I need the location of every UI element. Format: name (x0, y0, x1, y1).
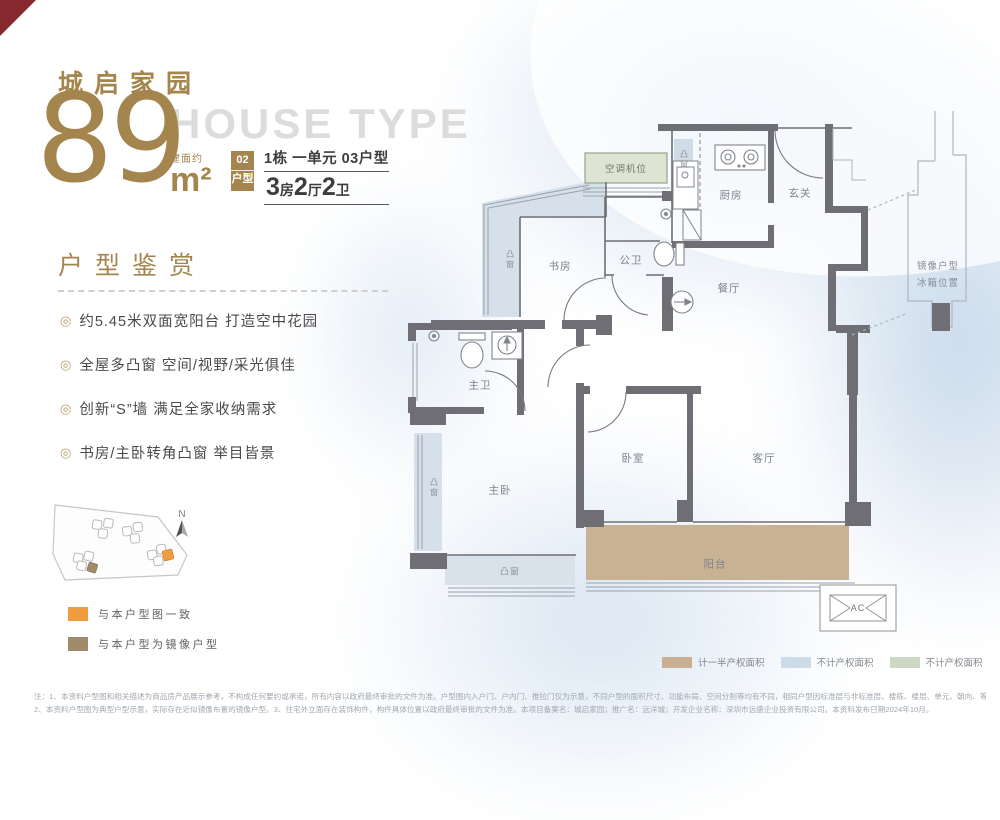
room-label-bedroom: 卧室 (622, 451, 645, 466)
unit-location: 1栋 一单元 03户型 (264, 147, 389, 172)
legend-item: 不计产权面积 (781, 655, 874, 669)
room-label-kitchen: 厨房 (720, 188, 743, 203)
north-arrow-icon: N (176, 509, 188, 537)
feature-text: 全屋多凸窗 空间/视野/采光俱佳 (79, 354, 296, 375)
site-plan: N (50, 492, 230, 607)
fridge-position-icon (671, 291, 693, 313)
list-item: ◎ 约5.45米双面宽阳台 打造空中花园 (60, 310, 318, 331)
room-label-dining: 餐厅 (718, 281, 741, 296)
room-label-ac-outdoor: AC (851, 603, 866, 613)
site-legend: 与本户型图一致 与本户型为镜像户型 (68, 606, 220, 666)
legend-item: 与本户型图一致 (68, 606, 220, 622)
baths-unit: 卫 (336, 182, 350, 198)
bay-window-label-study: 凸窗 (505, 250, 516, 270)
room-label-master-bath: 主卫 (469, 378, 492, 393)
area-unit-block: 建面约 m² (170, 150, 212, 196)
disclaimer-line1: 注：1、本资料户型图和相关描述为商品房产品展示参考，不构成任何要约或承诺，所有内… (34, 690, 986, 703)
baths-count: 2 (322, 173, 336, 201)
room-label-public-bath: 公卫 (620, 253, 643, 268)
room-label-living: 客厅 (753, 451, 776, 466)
room-label-ac-slot: 空调机位 (605, 161, 647, 175)
feature-text: 约5.45米双面宽阳台 打造空中花园 (79, 310, 318, 331)
list-item: ◎ 书房/主卧转角凸窗 举目皆景 (60, 442, 318, 463)
brown-swatch (68, 637, 88, 651)
kitchen-stove-icon (715, 145, 765, 170)
room-label-master-bedroom: 主卧 (489, 483, 512, 498)
legend-label: 不计产权面积 (926, 655, 983, 669)
list-item: ◎ 全屋多凸窗 空间/视野/采光俱佳 (60, 354, 318, 375)
legend-label: 与本户型图一致 (98, 606, 193, 622)
site-plan-svg: N (50, 492, 230, 602)
room-label-entry: 玄关 (789, 186, 812, 201)
mirror-note-line1: 镜像户型 (917, 258, 959, 272)
dashed-divider (58, 290, 388, 292)
area-unit: m² (170, 165, 212, 196)
corner-fold-decoration (0, 0, 36, 36)
half-area-swatch (662, 657, 692, 668)
halls-count: 2 (294, 173, 308, 201)
bullet-icon: ◎ (60, 313, 71, 329)
master-bath-fixtures (429, 331, 522, 368)
this-unit-highlight (162, 549, 174, 561)
no-area-blue-swatch (781, 657, 811, 668)
svg-text:N: N (178, 509, 185, 520)
bay-window-label-bottom: 凸窗 (500, 565, 520, 578)
bay-window-label-master-left: 凸窗 (429, 478, 440, 498)
mirror-unit-inset (833, 111, 966, 335)
disclaimer-line2: 2、本资料户型图为典型户型示意，实际存在近似镜像布置的镜像户型。3、住宅外立面存… (34, 703, 986, 716)
unit-badge-number: 02 (236, 154, 248, 166)
mirror-note-line2: 冰箱位置 (917, 275, 959, 289)
feature-text: 书房/主卧转角凸窗 举目皆景 (79, 442, 275, 463)
rooms-unit: 房 (280, 182, 294, 198)
rooms-count: 3 (266, 173, 280, 201)
balcony-fill (586, 525, 849, 580)
orange-swatch (68, 607, 88, 621)
halls-unit: 厅 (308, 182, 322, 198)
area-number: 89 (36, 78, 183, 200)
legend-item: 与本户型为镜像户型 (68, 636, 220, 652)
legend-item: 不计产权面积 (890, 655, 983, 669)
room-label-study: 书房 (549, 259, 572, 274)
legend-item: 计一半产权面积 (662, 655, 765, 669)
unit-info: 1栋 一单元 03户型 3房2厅2卫 (264, 147, 389, 205)
disclaimer: 注：1、本资料户型图和相关描述为商品房产品展示参考，不构成任何要约或承诺，所有内… (34, 690, 986, 717)
area-legend: 计一半产权面积 不计产权面积 不计产权面积 (662, 655, 999, 669)
feature-list: ◎ 约5.45米双面宽阳台 打造空中花园 ◎ 全屋多凸窗 空间/视野/采光俱佳 … (60, 310, 318, 486)
bay-window-fills (414, 139, 693, 585)
bay-window-label-kitchen: 凸窗 (679, 150, 690, 170)
room-label-balcony: 阳台 (704, 557, 727, 572)
bullet-icon: ◎ (60, 401, 71, 417)
appreciation-title: 户型鉴赏 (58, 246, 206, 282)
layout-summary: 3房2厅2卫 (264, 172, 389, 205)
floor-plan: 空调机位 厨房 玄关 公卫 书房 餐厅 主卫 主卧 卧室 客厅 阳台 AC 凸窗… (400, 105, 975, 665)
list-item: ◎ 创新“S”墙 满足全家收纳需求 (60, 398, 318, 419)
legend-label: 计一半产权面积 (698, 655, 765, 669)
unit-number-badge: 02 户型 (231, 151, 254, 191)
unit-badge-text: 户型 (231, 170, 254, 187)
legend-label: 不计产权面积 (817, 655, 874, 669)
bullet-icon: ◎ (60, 357, 71, 373)
no-area-green-swatch (890, 657, 920, 668)
site-boundary (53, 505, 187, 580)
feature-text: 创新“S”墙 满足全家收纳需求 (79, 398, 277, 419)
legend-label: 与本户型为镜像户型 (98, 636, 220, 652)
public-bath-toilet-icon (654, 209, 684, 266)
bullet-icon: ◎ (60, 445, 71, 461)
